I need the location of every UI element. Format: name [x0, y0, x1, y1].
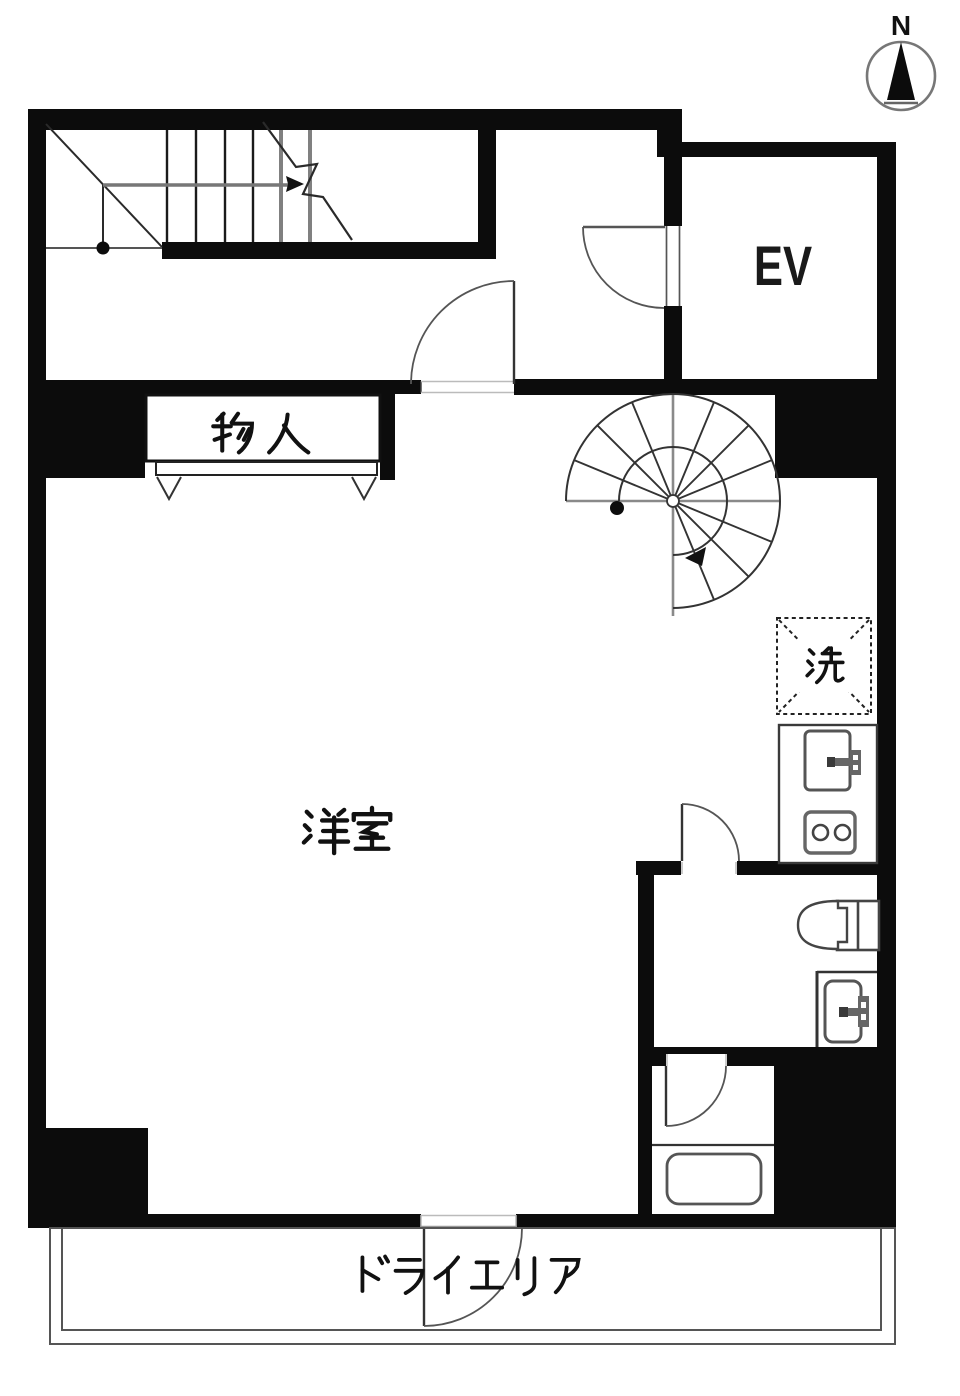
svg-text:N: N [891, 10, 911, 41]
svg-text:EV: EV [754, 235, 813, 297]
